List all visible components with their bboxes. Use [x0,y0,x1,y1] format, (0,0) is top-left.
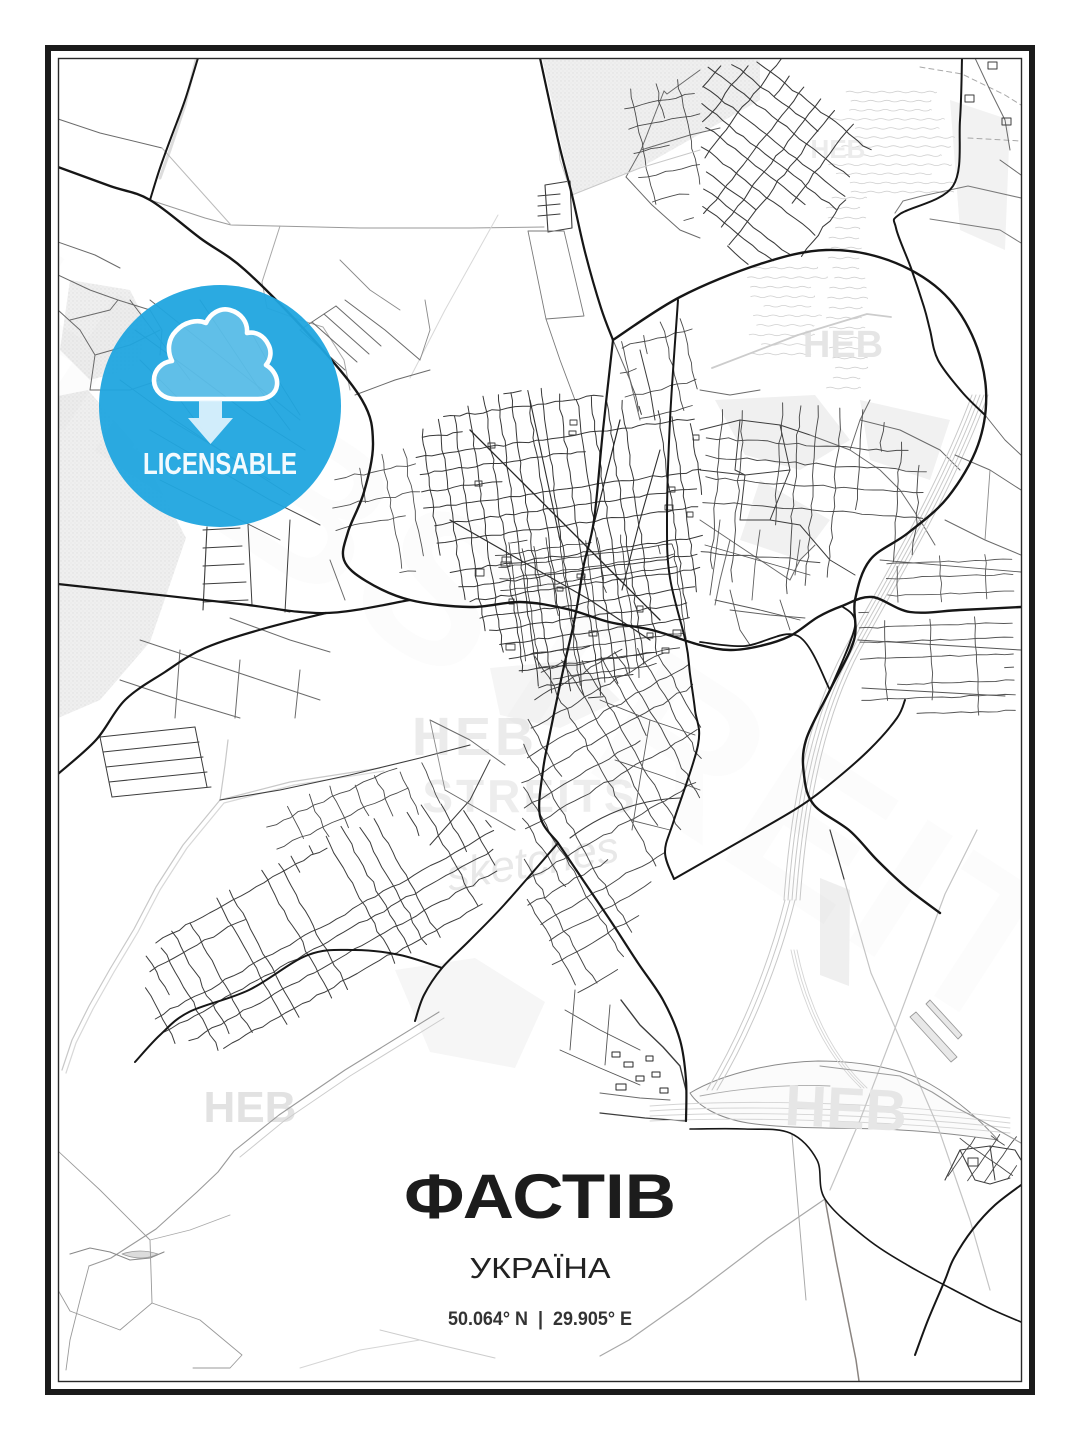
svg-text:HEB: HEB [783,1073,909,1144]
svg-text:HEB: HEB [811,134,866,164]
svg-text:УКРАЇНА: УКРАЇНА [470,1253,611,1285]
svg-text:50.064° N | 29.905° E: 50.064° N | 29.905° E [448,1309,632,1330]
svg-text:ФАСТІВ: ФАСТІВ [404,1162,676,1232]
svg-text:LICENSABLE: LICENSABLE [143,446,297,481]
svg-text:HEB: HEB [204,1083,297,1132]
